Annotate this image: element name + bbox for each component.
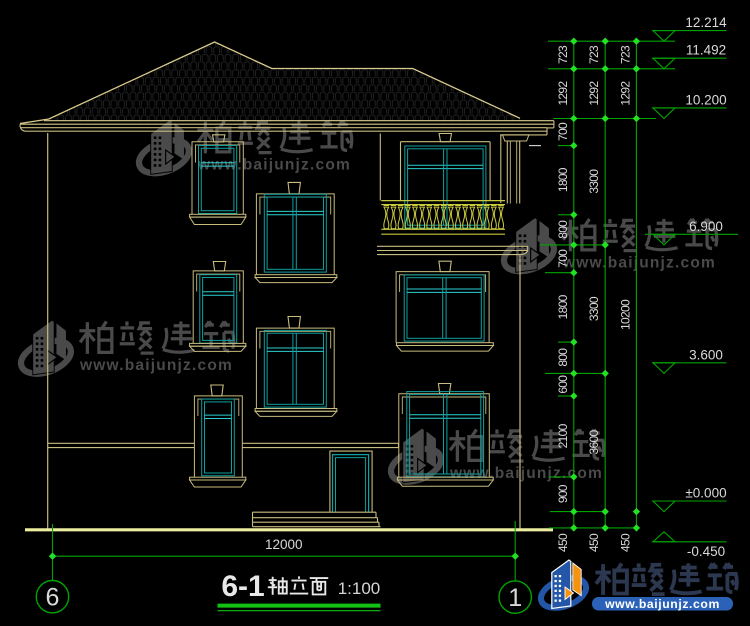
svg-text:www.baijunjz.com: www.baijunjz.com bbox=[604, 597, 720, 611]
svg-text:1292: 1292 bbox=[618, 81, 632, 106]
svg-text:1800: 1800 bbox=[556, 294, 570, 319]
svg-text:1292: 1292 bbox=[587, 81, 601, 106]
svg-text:2100: 2100 bbox=[556, 423, 570, 448]
svg-text:1800: 1800 bbox=[556, 167, 570, 192]
svg-text:800: 800 bbox=[556, 348, 570, 367]
svg-text:www.baijunjz.com: www.baijunjz.com bbox=[562, 255, 716, 272]
svg-text:723: 723 bbox=[587, 45, 601, 64]
svg-text:450: 450 bbox=[618, 533, 632, 552]
svg-text:www.baijunjz.com: www.baijunjz.com bbox=[197, 157, 351, 174]
svg-text:10.200: 10.200 bbox=[685, 92, 726, 107]
svg-text:6: 6 bbox=[46, 584, 60, 612]
svg-text:1:100: 1:100 bbox=[338, 579, 381, 598]
svg-text:±0.000: ±0.000 bbox=[685, 486, 726, 501]
svg-text:www.baijunjz.com: www.baijunjz.com bbox=[79, 357, 233, 374]
svg-text:450: 450 bbox=[556, 533, 570, 552]
svg-text:12.214: 12.214 bbox=[685, 15, 727, 30]
svg-text:3300: 3300 bbox=[587, 296, 601, 321]
svg-text:723: 723 bbox=[556, 45, 570, 64]
svg-text:600: 600 bbox=[556, 375, 570, 394]
svg-text:450: 450 bbox=[587, 533, 601, 552]
svg-text:1292: 1292 bbox=[556, 81, 570, 106]
svg-text:3.600: 3.600 bbox=[689, 347, 723, 362]
svg-text:800: 800 bbox=[556, 220, 570, 239]
svg-text:-0.450: -0.450 bbox=[687, 544, 725, 559]
svg-text:723: 723 bbox=[618, 45, 632, 64]
svg-text:6-1: 6-1 bbox=[221, 570, 264, 603]
svg-text:3600: 3600 bbox=[587, 430, 601, 455]
svg-text:6.900: 6.900 bbox=[689, 219, 723, 234]
svg-text:700: 700 bbox=[556, 122, 570, 141]
svg-text:3300: 3300 bbox=[587, 169, 601, 194]
svg-text:1: 1 bbox=[508, 584, 522, 612]
svg-text:12000: 12000 bbox=[265, 537, 303, 552]
svg-text:11.492: 11.492 bbox=[686, 43, 726, 58]
svg-text:900: 900 bbox=[556, 484, 570, 503]
svg-text:700: 700 bbox=[556, 249, 570, 268]
svg-text:10200: 10200 bbox=[618, 299, 632, 330]
